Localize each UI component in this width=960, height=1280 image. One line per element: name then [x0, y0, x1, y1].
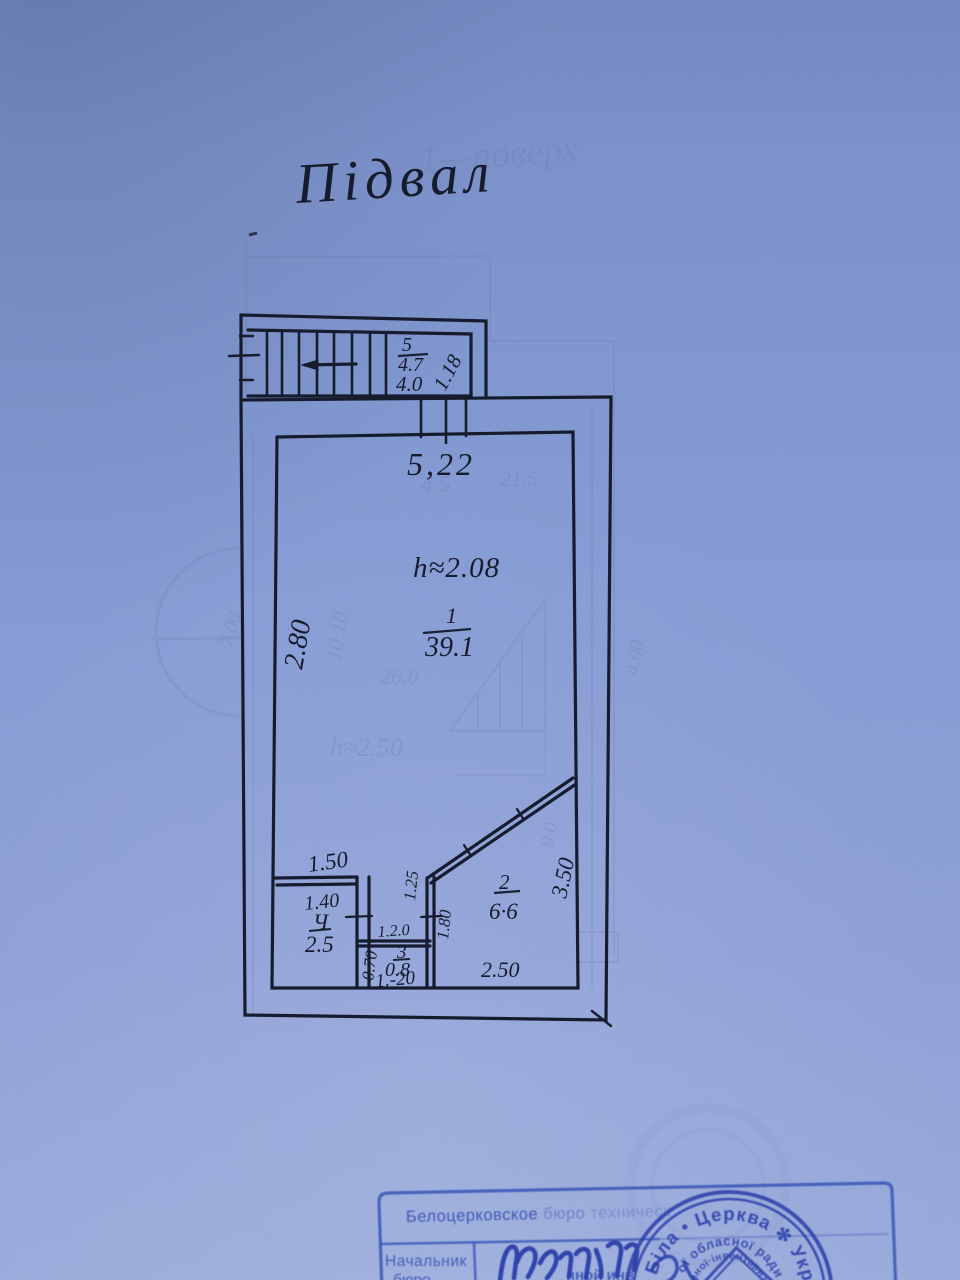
svg-text:Підвал: Підвал	[293, 141, 497, 216]
svg-text:2: 2	[499, 870, 510, 894]
svg-text:6·6: 6·6	[489, 899, 518, 924]
svg-text:5,22: 5,22	[407, 446, 475, 482]
svg-text:5: 5	[402, 334, 412, 356]
svg-text:39.1: 39.1	[424, 632, 474, 663]
svg-text:1.80: 1.80	[433, 908, 455, 940]
svg-text:9.0: 9.0	[536, 820, 562, 848]
svg-text:1.2.0: 1.2.0	[377, 922, 410, 941]
svg-text:h≈2.08: h≈2.08	[413, 552, 500, 584]
svg-text:2.50: 2.50	[481, 957, 520, 982]
svg-text:Начальник: Начальник	[385, 1253, 467, 1270]
svg-text:26.0: 26.0	[380, 664, 419, 689]
svg-text:1.-20: 1.-20	[375, 968, 417, 992]
svg-text:бюро: бюро	[393, 1272, 431, 1280]
svg-text:2.5: 2.5	[305, 932, 334, 957]
svg-text:21.5: 21.5	[500, 466, 539, 491]
svg-text:4.0: 4.0	[396, 372, 423, 396]
svg-text:h≈2.50: h≈2.50	[330, 733, 403, 762]
svg-text:1: 1	[446, 603, 457, 628]
svg-text:1.25: 1.25	[400, 870, 422, 902]
